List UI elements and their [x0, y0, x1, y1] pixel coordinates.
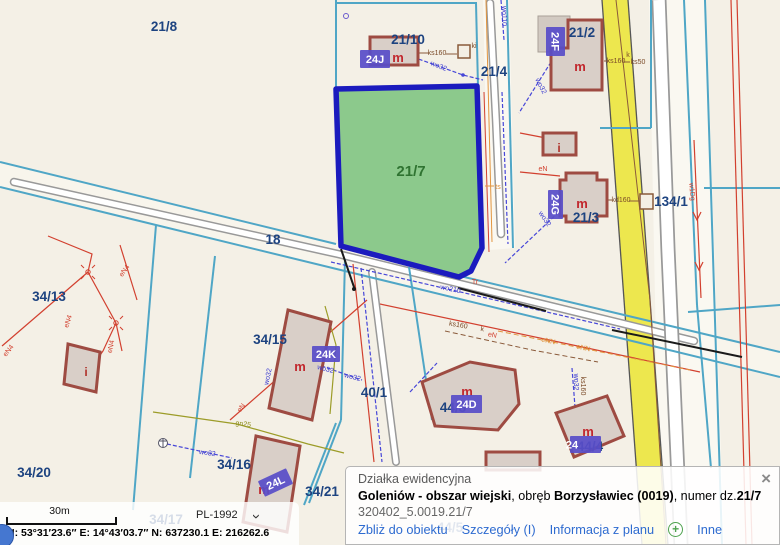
parcel-number: 21/7: [737, 489, 762, 503]
well-icon: [159, 439, 168, 448]
scale-label: 30m: [6, 505, 113, 517]
utility-label: ks50: [631, 59, 646, 66]
scale-bar: [6, 517, 117, 525]
parcel-identifier: 320402_5.0019.21/7: [358, 505, 769, 519]
address-number-label: 24J: [360, 50, 390, 68]
popup-title: Działka ewidencyjna: [358, 472, 769, 486]
utility-label: kd160: [611, 197, 630, 204]
utility-label: Tr: [472, 279, 479, 286]
zoom-to-object-link[interactable]: Zbliż do obiektu: [358, 522, 448, 537]
close-icon[interactable]: ×: [761, 470, 771, 487]
building-usage-label: m: [294, 359, 306, 374]
parcel-info-popup: Działka ewidencyjna × Goleniów - obszar …: [345, 466, 780, 545]
svg-text:24F: 24F: [549, 32, 561, 51]
selected-parcel-label: 21/7: [396, 163, 425, 180]
parcel-label: 21/4: [481, 64, 508, 79]
utility-label: wo32: [572, 373, 579, 391]
address-number-label: 24G: [548, 190, 563, 219]
pole-icon: [352, 287, 356, 291]
numer-prefix: , numer dz.: [674, 489, 737, 503]
building-usage-label: i: [557, 141, 560, 155]
svg-text:24D: 24D: [456, 399, 476, 411]
address-number-label: 24: [566, 436, 601, 453]
parcel-label: 21/3: [573, 210, 600, 225]
obreb-name: Borzysławiec (0019): [554, 489, 674, 503]
building-usage-label: m: [392, 50, 404, 65]
svg-text:24: 24: [566, 440, 579, 452]
utility-label: k: [626, 52, 630, 59]
utility-label: eN: [539, 166, 548, 173]
utility-label: ts: [495, 184, 501, 191]
utility-label: ks160: [579, 377, 586, 396]
parcel-label: 34/13: [32, 289, 66, 304]
crs-selector[interactable]: PL-1992: [196, 509, 238, 521]
utility-box: [458, 45, 470, 58]
svg-text:24J: 24J: [366, 54, 384, 66]
building-usage-label: i: [84, 365, 87, 379]
selected-parcel-highlight[interactable]: [336, 86, 482, 277]
parcel-label: 34/21: [305, 484, 339, 499]
svg-text:24K: 24K: [316, 349, 336, 361]
utility-label: wo110: [500, 5, 507, 26]
utility-label: ks160: [428, 50, 447, 57]
building-outline: [64, 344, 100, 392]
building-usage-label: m: [574, 59, 586, 74]
parcel-label: 40/1: [361, 385, 388, 400]
address-number-label: 24F: [546, 27, 565, 56]
parcel-label: 21/10: [391, 32, 425, 47]
utility-label: ks160: [607, 58, 626, 65]
utility-box: [640, 194, 653, 209]
region-name: Goleniów - obszar wiejski: [358, 489, 511, 503]
other-link[interactable]: Inne: [697, 522, 722, 537]
popup-actions: Zbliż do obiektu Szczegóły (I) Informacj…: [358, 522, 769, 537]
parcel-label: 21/2: [569, 25, 595, 40]
svg-text:24G: 24G: [549, 194, 561, 215]
parcel-label: 34/20: [17, 465, 51, 480]
chevron-down-icon[interactable]: ›: [248, 514, 265, 519]
parcel-label: 21/8: [151, 19, 178, 34]
parcel-label: 134/1: [654, 194, 688, 209]
parcel-description: Goleniów - obszar wiejski, obręb Borzysł…: [358, 489, 769, 503]
map-canvas[interactable]: 21/821/1021/421/221/3134/134/131834/1540…: [0, 0, 780, 545]
parcel-label: 18: [265, 232, 281, 247]
coordinates-readout: N: 53°31′23.6″ E: 14°43′03.7″ N: 637230.…: [7, 527, 269, 539]
address-number-label: 24D: [451, 395, 482, 413]
parcel-label: 34/16: [217, 457, 251, 472]
obreb-prefix: , obręb: [511, 489, 554, 503]
valve-icon: [461, 73, 465, 77]
plan-info-link[interactable]: Informacja z planu: [550, 522, 655, 537]
address-number-label: 24K: [312, 346, 340, 362]
plus-circle-icon[interactable]: +: [668, 522, 683, 537]
map-viewer: 21/821/1021/421/221/3134/134/131834/1540…: [0, 0, 780, 545]
details-link[interactable]: Szczegóły (I): [462, 522, 536, 537]
parcel-label: 34/15: [253, 332, 287, 347]
utility-label: ki: [471, 43, 477, 50]
building-usage-label: m: [576, 196, 588, 211]
